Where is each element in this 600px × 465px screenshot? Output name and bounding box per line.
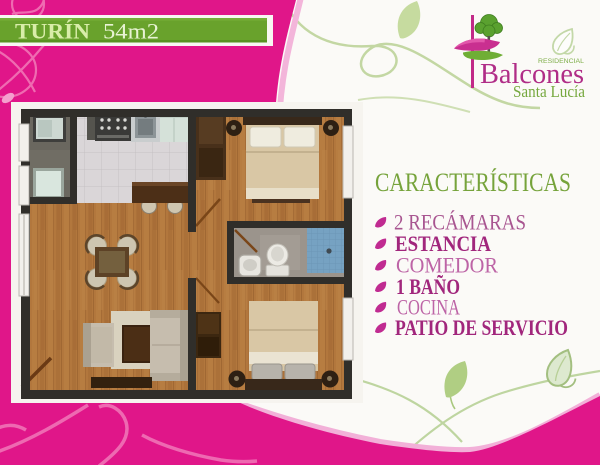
svg-text:PATIO DE SERVICIO: PATIO DE SERVICIO xyxy=(395,315,568,340)
svg-text:Santa Lucía: Santa Lucía xyxy=(513,82,586,101)
svg-text:CARACTERÍSTICAS: CARACTERÍSTICAS xyxy=(375,168,571,197)
